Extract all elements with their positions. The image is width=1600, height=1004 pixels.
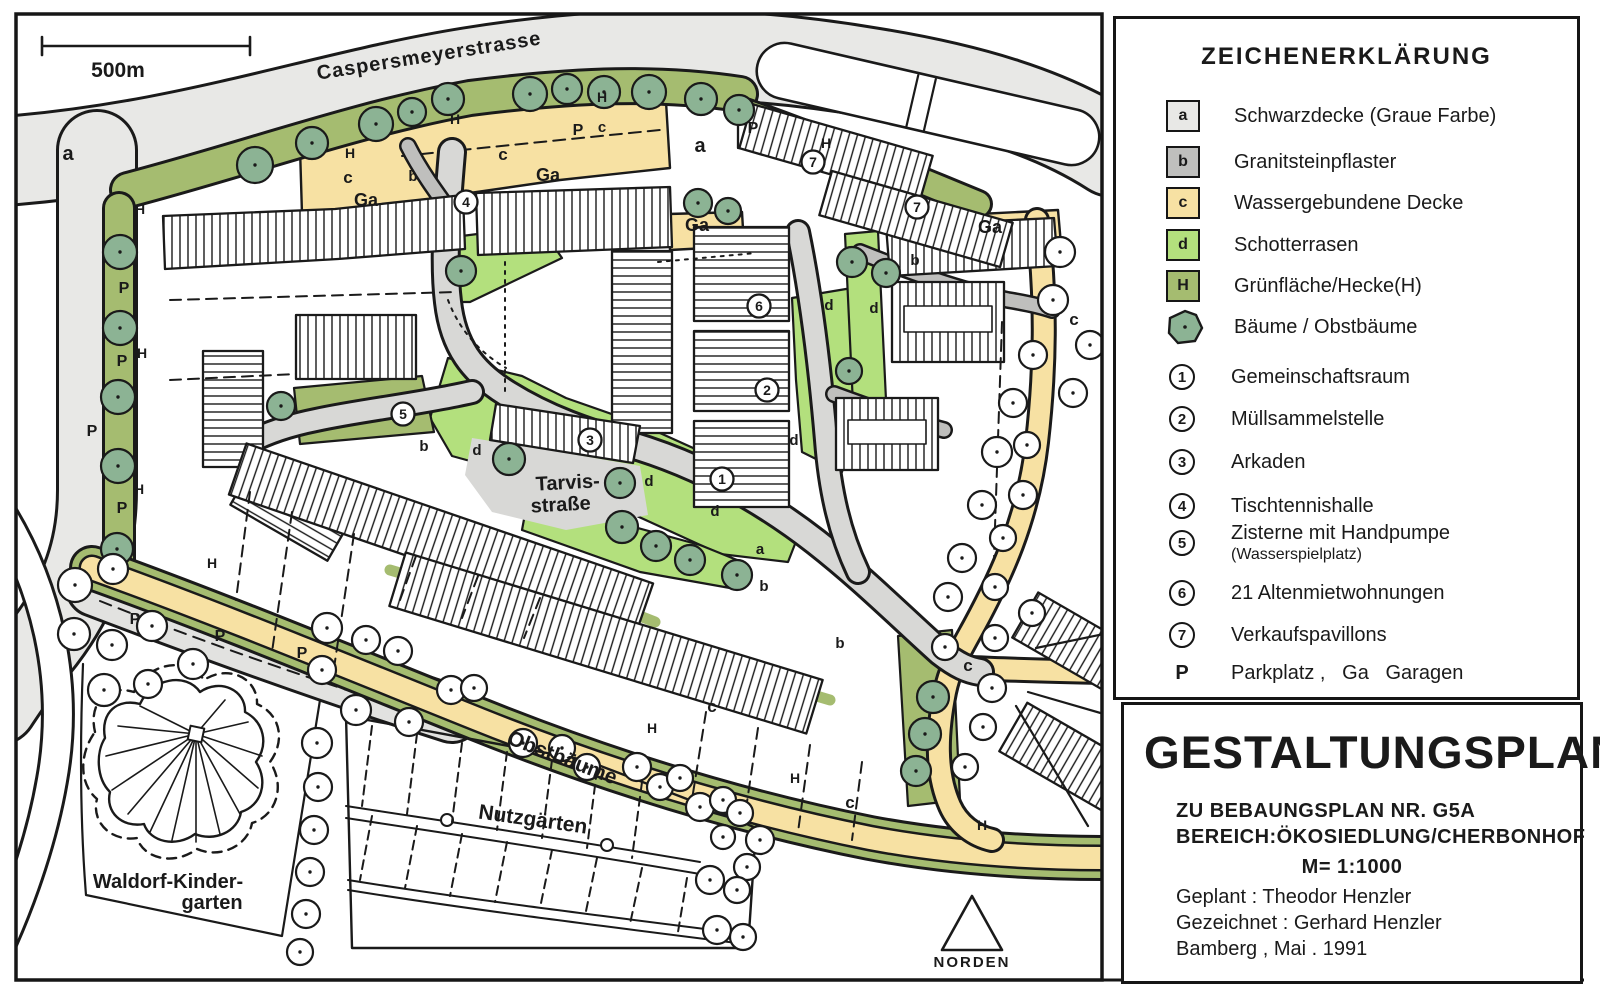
map-letter-label: d [789, 432, 798, 449]
fruit-tree-icon [667, 765, 693, 791]
fruit-tree-icon [88, 674, 120, 706]
svg-text:2: 2 [763, 382, 771, 398]
fruit-tree-icon [970, 714, 996, 740]
fruit-tree-icon [1019, 600, 1045, 626]
map-letter-label: a [694, 135, 706, 157]
map-letter-label: H [597, 89, 607, 105]
fruit-tree-icon [58, 568, 92, 602]
map-letter-label: P [87, 423, 98, 440]
legend-p-key: P [1169, 662, 1195, 685]
legend-item-7: 7 Verkaufspavillons [1166, 617, 1387, 653]
map-letter-label: d [644, 473, 653, 490]
swatch-h-icon: H [1166, 270, 1200, 302]
tree-icon [1166, 309, 1204, 345]
legend-circle-3: 3 [1169, 449, 1195, 475]
map-letter-label: Ga [685, 215, 710, 235]
map-letter-label: c [598, 119, 606, 136]
fruit-tree-icon [1038, 285, 1068, 315]
fruit-tree-icon [300, 816, 328, 844]
map-letter-label: H [821, 135, 831, 151]
fruit-tree-icon [292, 900, 320, 928]
svg-text:5: 5 [399, 406, 407, 422]
svg-text:6: 6 [755, 298, 763, 314]
legend-circle-6: 6 [1169, 580, 1195, 606]
map-letter-label: H [137, 345, 147, 361]
map-letter-label: H [134, 481, 144, 497]
fruit-tree-icon [1059, 379, 1087, 407]
tree-icon [901, 756, 931, 786]
fruit-tree-icon [1076, 331, 1104, 359]
fruit-tree-icon [1019, 341, 1047, 369]
tree-icon [513, 77, 547, 111]
svg-text:7: 7 [913, 199, 921, 215]
map-letter-label: b [419, 438, 428, 455]
fruit-tree-icon [724, 877, 750, 903]
tree-icon [552, 74, 582, 104]
plan-title: GESTALTUNGSPLAN [1144, 727, 1572, 779]
fruit-tree-icon [287, 939, 313, 965]
map-marker-2: 2 [756, 379, 779, 402]
north-arrow [942, 896, 1002, 950]
legend-item-3: 3 Arkaden [1166, 444, 1306, 480]
fruit-tree-icon [134, 670, 162, 698]
legend-panel: ZEICHENERKLÄRUNG a Schwarzdecke (Graue F… [1113, 16, 1580, 700]
plan-planned-by: Geplant : Theodor Henzler [1176, 886, 1411, 909]
scale-bar [42, 37, 250, 55]
fruit-tree-icon [727, 800, 753, 826]
plan-subtitle-2: BEREICH:ÖKOSIEDLUNG/CHERBONHOF [1176, 826, 1585, 849]
map-letter-label: b [408, 168, 417, 185]
plan-sheet: { "colors":{ "ink":"#1a1a1a", "road_gray… [0, 0, 1600, 1004]
legend-item-gruenflaeche: H Grünfläche/Hecke(H) [1166, 268, 1422, 304]
tree-icon [917, 681, 949, 713]
fruit-tree-icon [932, 634, 958, 660]
tree-icon [101, 449, 135, 483]
map-letter-label: c [845, 793, 854, 812]
legend-title: ZEICHENERKLÄRUNG [1116, 43, 1577, 71]
legend-item-1: 1 Gemeinschaftsraum [1166, 359, 1410, 395]
fruit-tree-icon [982, 437, 1012, 467]
map-letter-label: b [759, 578, 768, 595]
map-letter-label: H [207, 555, 217, 571]
map-letter-label: P [748, 120, 759, 137]
svg-text:7: 7 [809, 154, 817, 170]
map-marker-6: 6 [748, 295, 771, 318]
map-letter-label: d [869, 300, 878, 317]
map-letter-label: P [117, 500, 128, 517]
legend-item-5: 5 Zisterne mit Handpumpe(Wasserspielplat… [1166, 525, 1450, 561]
legend-item-2: 2 Müllsammelstelle [1166, 401, 1384, 437]
tree-icon [446, 256, 476, 286]
plan-subtitle-1: ZU BEBAUNGSPLAN NR. G5A [1176, 800, 1475, 823]
fruit-tree-icon [178, 649, 208, 679]
fruit-tree-icon [952, 754, 978, 780]
map-letter-label: P [119, 280, 130, 297]
scale-label: 500m [91, 59, 145, 82]
north-label: NORDEN [933, 954, 1010, 971]
map-letter-label: P [573, 122, 584, 139]
map-letter-label: P [117, 353, 128, 370]
svg-text:3: 3 [586, 432, 594, 448]
legend-item-4: 4 Tischtennishalle [1166, 488, 1374, 524]
fruit-tree-icon [296, 858, 324, 886]
area-label-waldorf-kindergarten-2: garten [181, 892, 242, 914]
street-label-tarvisstrasse-2: straße [530, 492, 591, 517]
fruit-tree-icon [97, 630, 127, 660]
tree-icon [715, 198, 741, 224]
legend-item-schotterrasen: d Schotterrasen [1166, 227, 1359, 263]
fruit-tree-icon [352, 626, 380, 654]
fruit-tree-icon [982, 574, 1008, 600]
tree-icon [398, 98, 426, 126]
fruit-tree-icon [730, 924, 756, 950]
legend-circle-4: 4 [1169, 493, 1195, 519]
fruit-tree-icon [623, 753, 651, 781]
fruit-tree-icon [1014, 432, 1040, 458]
fruit-tree-icon [308, 656, 336, 684]
map-letter-label: P [297, 645, 308, 662]
map-letter-label: a [756, 541, 765, 558]
fruit-tree-icon [461, 675, 487, 701]
legend-item-wassergebundene-decke: c Wassergebundene Decke [1166, 185, 1463, 221]
plan-scale: M= 1:1000 [1124, 856, 1580, 879]
fruit-tree-icon [304, 773, 332, 801]
map-letter-label: d [824, 297, 833, 314]
tree-icon [493, 443, 525, 475]
map-letter-label: c [343, 168, 352, 187]
fruit-tree-icon [703, 916, 731, 944]
map-letter-label: H [450, 111, 460, 127]
fruit-tree-icon [341, 695, 371, 725]
swatch-d-icon: d [1166, 229, 1200, 261]
title-block: GESTALTUNGSPLAN ZU BEBAUNGSPLAN NR. G5A … [1121, 702, 1583, 984]
fruit-tree-icon [1045, 237, 1075, 267]
map-letter-label: b [910, 252, 919, 269]
tree-icon [675, 545, 705, 575]
legend-circle-5: 5 [1169, 530, 1195, 556]
map-letter-label: P [130, 611, 141, 628]
swatch-c-icon: c [1166, 187, 1200, 219]
map-letter-label: c [963, 656, 972, 675]
map-letter-label: d [710, 503, 719, 520]
map-letter-label: P [215, 628, 226, 645]
map-letter-label: c [498, 145, 507, 164]
tree-icon [909, 718, 941, 750]
map-letter-label: c [1069, 310, 1078, 329]
map-letter-label: c [707, 697, 716, 716]
area-label-waldorf-kindergarten-1: Waldorf-Kinder- [93, 871, 243, 893]
map-marker-7: 7 [802, 151, 825, 174]
tree-icon [685, 83, 717, 115]
tree-icon [872, 259, 900, 287]
legend-circle-2: 2 [1169, 406, 1195, 432]
tree-icon [684, 189, 712, 217]
fruit-tree-icon [999, 389, 1027, 417]
map-letter-label: H [647, 720, 657, 736]
fruit-tree-icon [982, 625, 1008, 651]
area-label-nutzgaerten: Nutzgärten [477, 801, 589, 839]
swatch-a-icon: a [1166, 100, 1200, 132]
tree-icon [837, 247, 867, 277]
map-marker-5: 5 [392, 403, 415, 426]
map-marker-7: 7 [906, 196, 929, 219]
fruit-tree-icon [302, 728, 332, 758]
fruit-tree-icon [711, 825, 735, 849]
tree-icon [101, 380, 135, 414]
tree-icon [605, 468, 635, 498]
tree-icon [237, 147, 273, 183]
tree-icon [641, 531, 671, 561]
legend-item-baeume: Bäume / Obstbäume [1166, 309, 1417, 345]
tree-icon [267, 392, 295, 420]
legend-item-abbrev: P Parkplatz , Ga Garagen [1166, 655, 1463, 691]
legend-item-schwarzdecke: a Schwarzdecke (Graue Farbe) [1166, 98, 1496, 134]
fruit-tree-icon [934, 583, 962, 611]
fruit-tree-icon [384, 637, 412, 665]
map-letter-label: Ga [354, 190, 379, 210]
fruit-tree-icon [746, 826, 774, 854]
legend-item-6: 6 21 Altenmietwohnungen [1166, 575, 1445, 611]
tree-icon [836, 358, 862, 384]
tree-icon [632, 75, 666, 109]
fruit-tree-icon [696, 866, 724, 894]
map-letter-label: d [472, 442, 481, 459]
map-letter-label: H [135, 201, 145, 217]
fruit-tree-icon [1009, 481, 1037, 509]
map-marker-3: 3 [579, 429, 602, 452]
plan-place-date: Bamberg , Mai . 1991 [1176, 938, 1367, 961]
tree-icon [359, 107, 393, 141]
fruit-tree-icon [990, 525, 1016, 551]
map-letter-label: a [62, 143, 74, 165]
legend-circle-1: 1 [1169, 364, 1195, 390]
map-letter-label: H [977, 817, 987, 833]
fruit-tree-icon [58, 618, 90, 650]
map-marker-4: 4 [455, 191, 478, 214]
swatch-b-icon: b [1166, 146, 1200, 178]
street-label-tarvisstrasse-1: Tarvis- [535, 470, 600, 495]
fruit-tree-icon [978, 674, 1006, 702]
fruit-tree-icon [98, 554, 128, 584]
tree-icon [296, 127, 328, 159]
legend-circle-7: 7 [1169, 622, 1195, 648]
map-letter-label: H [790, 770, 800, 786]
fruit-tree-icon [137, 611, 167, 641]
tree-icon [722, 560, 752, 590]
fruit-tree-icon [968, 491, 996, 519]
fruit-tree-icon [948, 544, 976, 572]
map-letter-label: Ga [536, 165, 561, 185]
map-letter-label: H [345, 145, 355, 161]
fruit-tree-icon [395, 708, 423, 736]
svg-text:4: 4 [462, 194, 470, 210]
plan-drawn-by: Gezeichnet : Gerhard Henzler [1176, 912, 1442, 935]
legend-item-granitsteinpflaster: b Granitsteinpflaster [1166, 144, 1396, 180]
svg-text:1: 1 [718, 471, 726, 487]
map-letter-label: b [835, 635, 844, 652]
tree-icon [103, 311, 137, 345]
tree-icon [606, 511, 638, 543]
map-letter-label: Ga [978, 217, 1003, 237]
fruit-tree-icon [312, 613, 342, 643]
map-marker-1: 1 [711, 468, 734, 491]
tree-icon [103, 235, 137, 269]
